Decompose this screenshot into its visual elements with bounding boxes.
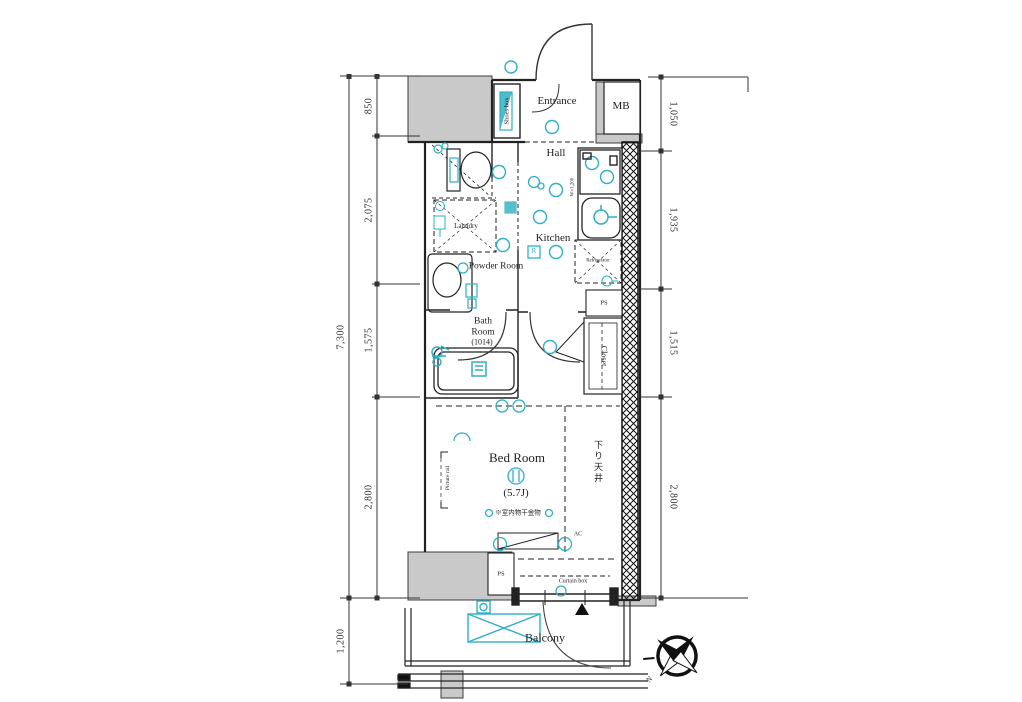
building-edge-lines xyxy=(398,674,648,688)
corridor-door-arc xyxy=(530,312,580,362)
dim-right-seg-2: 1,515 xyxy=(668,331,679,356)
party-wall-hatch xyxy=(622,142,638,600)
kitchen-counter xyxy=(578,148,622,240)
bed-note-label: ※室内物干金物 xyxy=(495,509,541,516)
shoes-box-label: Shoes box xyxy=(503,98,510,125)
dim-left-seg-2: 1,575 xyxy=(364,328,375,353)
dim-left-seg-3: 2,800 xyxy=(364,485,375,510)
escape-hatch-triangle xyxy=(575,603,589,615)
bath-faucet xyxy=(432,346,486,376)
balcony-window xyxy=(512,588,618,605)
mb-label: MB xyxy=(612,100,629,112)
laundry-label: Laundry xyxy=(454,223,478,231)
bed-size-label: (5.7J) xyxy=(503,487,528,499)
dropped-ceiling-label: 下り天井 xyxy=(592,440,602,484)
toilet xyxy=(432,143,491,196)
dim-right-seg-3: 2,800 xyxy=(668,485,679,510)
refrigerator-label: Refrigerator xyxy=(586,258,609,263)
hall-label: Hall xyxy=(547,147,566,159)
remote-box-label: R xyxy=(532,248,537,256)
balcony-label: Balcony xyxy=(525,631,565,644)
dim-left-seg-0: 850 xyxy=(364,98,375,115)
floor-plan: Entrance MB Hall Shoes box Kitchen W=1,2… xyxy=(0,0,1022,702)
picture-rail-label: Picture rail xyxy=(445,466,451,490)
dim-right-seg-0: 1,050 xyxy=(668,102,679,127)
closet xyxy=(556,318,622,394)
dim-left-balcony: 1,200 xyxy=(336,629,347,654)
bath-size-label: (1014) xyxy=(471,339,492,348)
bed-room-label: Bed Room xyxy=(489,451,545,465)
bathtub xyxy=(434,348,518,394)
kitchen-width-label: W=1,200 xyxy=(570,178,576,197)
ps-upper-label: PS xyxy=(600,299,607,306)
ac-label: AC xyxy=(574,532,582,539)
bath-room-label: Bath Room xyxy=(463,316,503,337)
entrance-label: Entrance xyxy=(537,95,576,107)
powder-room-label: Powder Room xyxy=(467,262,525,273)
dim-left-total: 7,300 xyxy=(336,325,347,350)
dim-left-seg-1: 2,075 xyxy=(364,198,375,223)
ps-lower-label: PS xyxy=(497,570,504,577)
air-conditioner xyxy=(498,533,558,549)
curtain-box-label: Curtain box xyxy=(559,579,588,586)
closet-label: Closet xyxy=(599,346,608,366)
dim-right-seg-1: 1,935 xyxy=(668,208,679,233)
kitchen-label: Kitchen xyxy=(536,232,571,244)
floor-plan-drawing xyxy=(0,0,1022,702)
